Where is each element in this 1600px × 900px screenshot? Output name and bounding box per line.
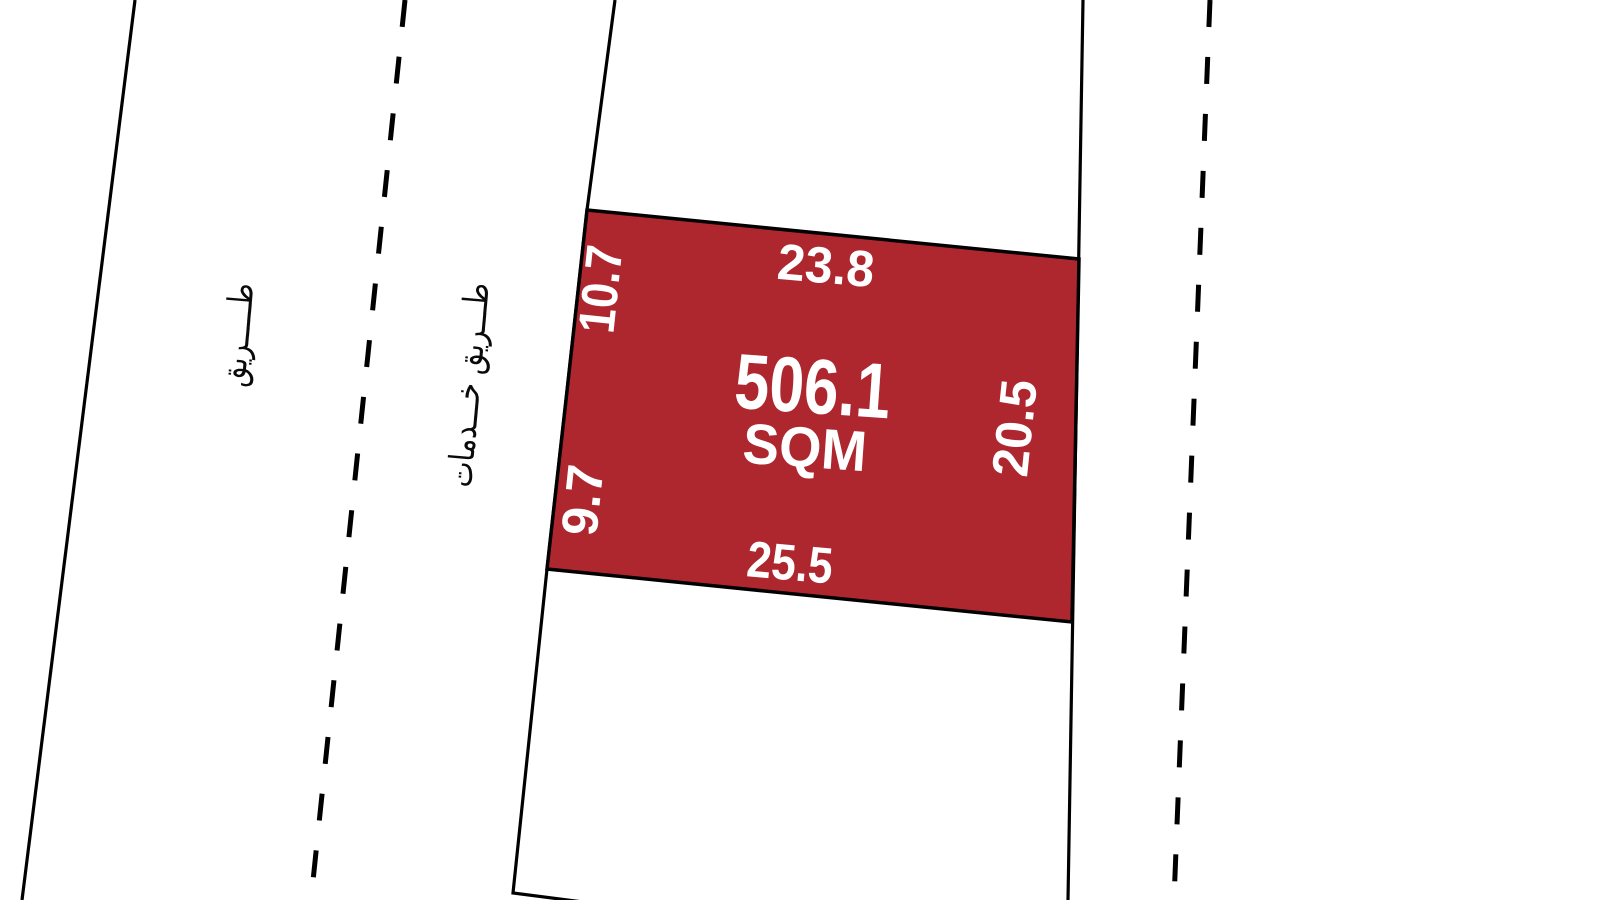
dimension-left-upper: 10.7 (568, 242, 634, 335)
dimension-left-lower: 9.7 (550, 462, 614, 539)
dimension-right: 20.5 (981, 377, 1048, 479)
dimension-bottom: 25.5 (745, 530, 836, 594)
right-road-dashed-centerline (1174, 0, 1210, 900)
plot-map: 506.1 SQM 23.8 20.5 25.5 10.7 9.7 طـــــ… (0, 0, 1600, 900)
dimension-top: 23.8 (775, 233, 877, 298)
service-road-label: طـــريق خـــدمات (440, 281, 498, 489)
left-road-dashed-centerline (311, 0, 405, 900)
plot-area-unit: SQM (741, 412, 869, 484)
left-road-label: طـــــريق (214, 281, 263, 388)
plot-map-canvas: 506.1 SQM 23.8 20.5 25.5 10.7 9.7 طـــــ… (0, 0, 1600, 900)
outer-road-boundary-line (22, 0, 135, 900)
